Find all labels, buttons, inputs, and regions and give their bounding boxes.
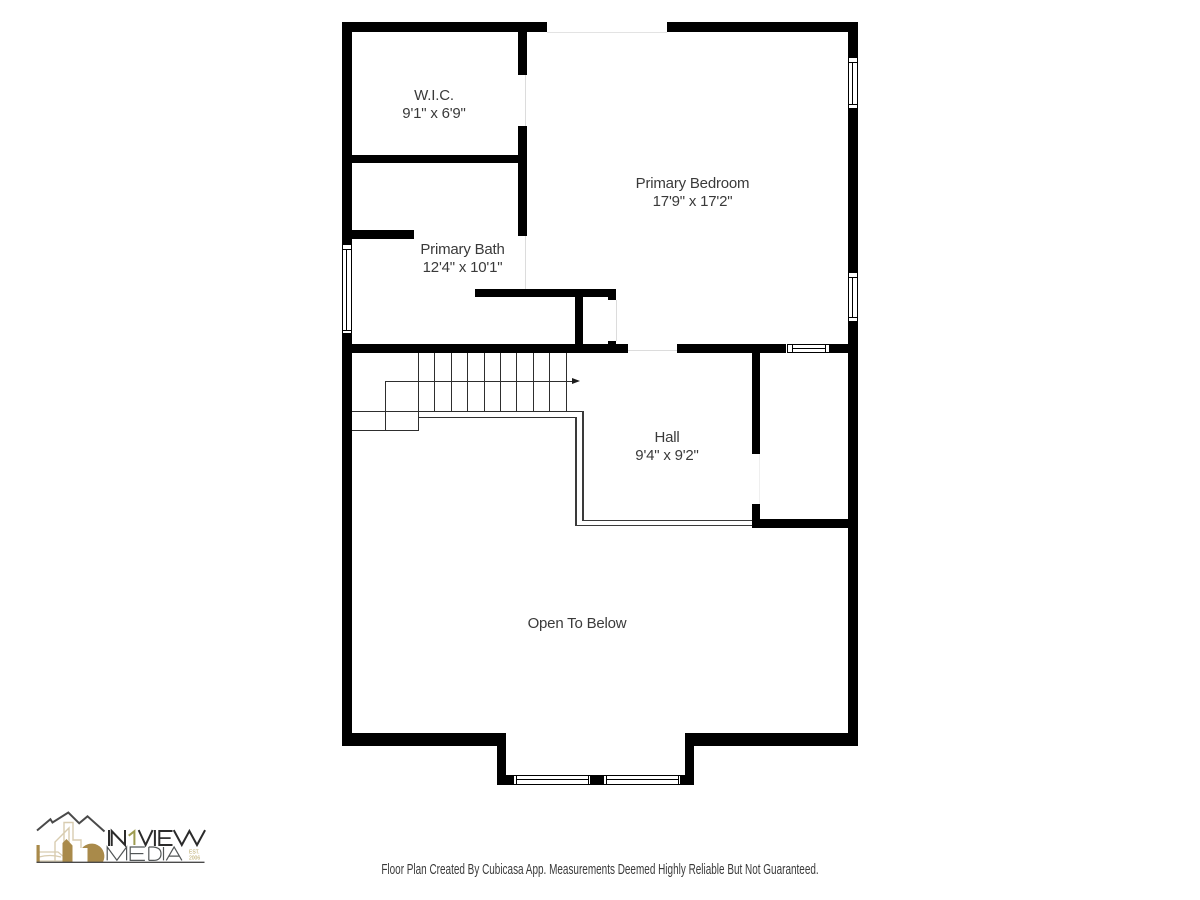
svg-text:2006: 2006 (189, 856, 200, 862)
